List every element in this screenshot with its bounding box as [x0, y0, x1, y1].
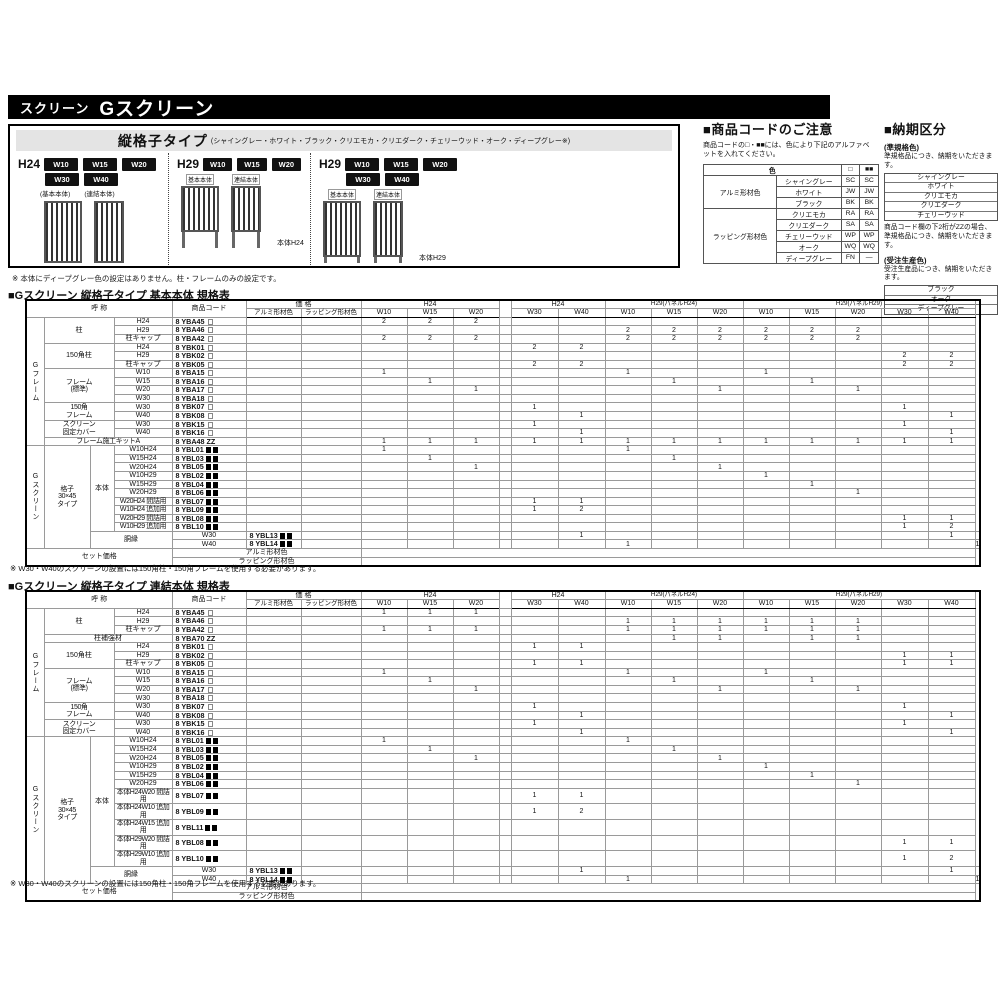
- qty-cell: 1: [835, 617, 881, 626]
- qty-cell: [743, 820, 789, 836]
- spacer-column-header: [499, 591, 511, 608]
- qty-cell: [881, 694, 928, 703]
- spacer-cell: [499, 454, 511, 463]
- size-chip: W40: [84, 173, 118, 186]
- price-cell-alumi: [246, 463, 301, 472]
- spec-row: W20H248 YBL0511: [26, 463, 980, 472]
- qty-cell: [361, 643, 407, 652]
- qty-cell: 1: [928, 412, 975, 421]
- item-size-label: W30: [172, 867, 246, 876]
- qty-cell: [789, 703, 835, 712]
- qty-cell: [407, 851, 453, 867]
- qty-cell: [835, 352, 881, 361]
- qty-cell: [605, 780, 651, 789]
- qty-cell: [361, 497, 407, 506]
- qty-cell: [558, 745, 605, 754]
- code-suffix-box: [206, 840, 211, 846]
- qty-cell: [928, 377, 975, 386]
- spacer-cell: [499, 720, 511, 729]
- size-chip: W40: [385, 173, 419, 186]
- code-suffix-box: [213, 447, 218, 453]
- qty-cell: 1: [928, 531, 975, 540]
- qty-cell: [453, 506, 499, 515]
- qty-cell: 1: [605, 625, 651, 634]
- code-suffix-box: [208, 610, 213, 616]
- price-cell-wrap: [301, 728, 361, 737]
- item-size-label: 本体H29W10 追加用: [114, 851, 172, 867]
- item-size-label: H24: [114, 608, 172, 617]
- joint-screen-drawing: [94, 201, 124, 263]
- code-suffix-box: [213, 482, 218, 488]
- qty-cell: [453, 412, 499, 421]
- qty-cell: [453, 703, 499, 712]
- item-size-label: W40: [114, 429, 172, 438]
- qty-cell: 2: [789, 334, 835, 343]
- price-cell-alumi: [246, 804, 301, 820]
- qty-cell: 2: [511, 343, 558, 352]
- qty-cell: [361, 804, 407, 820]
- qty-cell: [453, 617, 499, 626]
- qty-cell: [789, 651, 835, 660]
- qty-cell: [789, 386, 835, 395]
- qty-cell: [835, 788, 881, 804]
- item-subgroup-label: 150角柱: [44, 343, 114, 369]
- item-size-label: W40: [114, 728, 172, 737]
- qty-cell: [453, 446, 499, 455]
- item-size-label: W10H24: [114, 446, 172, 455]
- spec-row: 胴縁W308 YBL1311: [26, 867, 980, 876]
- qty-cell: [928, 677, 975, 686]
- qty-cell: [835, 835, 881, 851]
- qty-cell: [453, 471, 499, 480]
- spec-row: W208 YBA17111: [26, 386, 980, 395]
- color-code: ―: [860, 252, 879, 263]
- qty-cell: [697, 454, 743, 463]
- qty-cell: [928, 480, 975, 489]
- qty-cell: [407, 771, 453, 780]
- qty-cell: [743, 497, 789, 506]
- price-cell-wrap: [301, 677, 361, 686]
- qty-cell: [453, 420, 499, 429]
- code-suffix-box: [213, 755, 218, 761]
- qty-cell: [881, 711, 928, 720]
- item-size-label: W30: [114, 720, 172, 729]
- qty-cell: [651, 386, 697, 395]
- qty-cell: [881, 454, 928, 463]
- spacer-cell: [499, 634, 511, 643]
- size-panel: H29W10W15W20基本本体連結本体本体H24: [168, 153, 310, 265]
- code-notice-body: 商品コードの□・■■には、色により下記のアルファベットを入れてください。: [703, 141, 875, 160]
- set-price-value-area: [361, 892, 975, 901]
- post-legs: [373, 257, 403, 263]
- spec-row: フレーム施工キットA8 YBA48 ZZ1111111111111: [26, 437, 980, 446]
- qty-cell: 2: [511, 360, 558, 369]
- delivery-color-item: チェリーウッド: [885, 211, 997, 221]
- item-size-label: W10H24: [114, 737, 172, 746]
- material-group-label: ラッピング形材色: [704, 208, 777, 263]
- qty-cell: [361, 412, 407, 421]
- qty-cell: [407, 634, 453, 643]
- qty-cell: [651, 703, 697, 712]
- price-cell-alumi: [246, 677, 301, 686]
- item-size-label: W15: [114, 377, 172, 386]
- product-code: 8 YBA15: [172, 369, 246, 378]
- qty-cell: [453, 762, 499, 771]
- qty-cell: [743, 643, 789, 652]
- height-group-header: H24: [361, 591, 499, 600]
- qty-cell: [361, 394, 407, 403]
- item-size-label: 本体H29W20 間詰用: [114, 835, 172, 851]
- price-cell-alumi: [301, 867, 361, 876]
- qty-cell: 1: [881, 660, 928, 669]
- drawing-caption: 連結本体: [232, 174, 260, 185]
- basic-screen-drawing: [44, 201, 82, 263]
- qty-cell: 1: [511, 720, 558, 729]
- qty-cell: [651, 403, 697, 412]
- qty-cell: [651, 412, 697, 421]
- set-price-value-area: [361, 884, 975, 893]
- spacer-cell: [499, 608, 511, 617]
- qty-cell: [743, 403, 789, 412]
- item-size-label: 本体H24W20 間詰用: [114, 788, 172, 804]
- code-suffix-box: [206, 809, 211, 815]
- qty-cell: [881, 867, 928, 876]
- qty-cell: 1: [743, 617, 789, 626]
- screen-illustration: [94, 201, 124, 263]
- width-column-header: W20: [697, 309, 743, 318]
- color-code: SA: [860, 219, 879, 230]
- qty-cell: [407, 875, 453, 884]
- qty-cell: [511, 617, 558, 626]
- qty-cell: 1: [605, 875, 651, 884]
- qty-cell: [651, 835, 697, 851]
- qty-cell: [407, 668, 453, 677]
- qty-cell: [789, 867, 835, 876]
- qty-cell: [928, 454, 975, 463]
- qty-cell: [407, 780, 453, 789]
- code-suffix-box: [206, 793, 211, 799]
- spacer-cell: [499, 369, 511, 378]
- qty-cell: [511, 369, 558, 378]
- qty-cell: [558, 326, 605, 335]
- code-suffix-box: [213, 840, 218, 846]
- qty-cell: [361, 780, 407, 789]
- qty-cell: 2: [558, 360, 605, 369]
- qty-cell: [511, 711, 558, 720]
- qty-cell: [835, 420, 881, 429]
- qty-cell: 1: [511, 437, 558, 446]
- qty-cell: [789, 343, 835, 352]
- qty-cell: [361, 835, 407, 851]
- spec-header-row-1: 呼 称商品コード価 格H24H24H29(パネルH24)H29(パネルH29): [26, 591, 980, 600]
- code-suffix-box: [213, 793, 218, 799]
- spec-row: W20H248 YBL0511: [26, 754, 980, 763]
- qty-cell: [407, 617, 453, 626]
- qty-cell: [789, 875, 835, 884]
- price-cell-wrap: [301, 685, 361, 694]
- delivery-color-item: クリエモカ: [885, 192, 997, 202]
- qty-cell: [511, 634, 558, 643]
- qty-cell: [881, 540, 928, 549]
- spacer-cell: [499, 668, 511, 677]
- price-cell-alumi: [246, 608, 301, 617]
- qty-cell: [835, 820, 881, 836]
- section-group-label: Gスクリーン: [26, 737, 44, 884]
- qty-cell: 1: [789, 377, 835, 386]
- qty-cell: 1: [881, 420, 928, 429]
- qty-cell: [558, 334, 605, 343]
- qty-cell: [605, 720, 651, 729]
- qty-cell: [511, 523, 558, 532]
- qty-cell: [881, 608, 928, 617]
- price-cell-alumi: [246, 369, 301, 378]
- qty-cell: 1: [407, 677, 453, 686]
- qty-cell: [453, 875, 499, 884]
- qty-cell: [928, 386, 975, 395]
- qty-cell: 1: [881, 851, 928, 867]
- qty-cell: [511, 762, 558, 771]
- qty-cell: [835, 403, 881, 412]
- qty-cell: [928, 762, 975, 771]
- qty-cell: [605, 454, 651, 463]
- qty-cell: [651, 820, 697, 836]
- qty-cell: [558, 780, 605, 789]
- qty-cell: [881, 334, 928, 343]
- spec-row: 150角 フレームW308 YBK0711: [26, 403, 980, 412]
- code-column-header: 商品コード: [172, 300, 246, 317]
- price-group-header: 価 格: [246, 591, 361, 600]
- qty-cell: 2: [881, 360, 928, 369]
- qty-cell: 1: [697, 437, 743, 446]
- item-size-label: W15H24: [114, 745, 172, 754]
- price-cell-wrap: [301, 754, 361, 763]
- spec-row: W15H248 YBL0311: [26, 454, 980, 463]
- spacer-cell: [499, 835, 511, 851]
- qty-cell: [361, 762, 407, 771]
- price-cell-alumi: [246, 352, 301, 361]
- qty-cell: [511, 514, 558, 523]
- qty-cell: [605, 685, 651, 694]
- price-cell-alumi: [246, 317, 301, 326]
- item-size-label: H24: [114, 317, 172, 326]
- spacer-cell: [499, 403, 511, 412]
- screen-drawings: 基本本体連結本体本体H29: [323, 189, 674, 263]
- drawing-caption: 連結本体: [374, 189, 402, 200]
- qty-cell: [453, 780, 499, 789]
- color-code: SA: [841, 219, 860, 230]
- qty-cell: [928, 326, 975, 335]
- spacer-cell: [499, 317, 511, 326]
- code-suffix-box: [213, 473, 218, 479]
- item-subgroup-label: スクリーン 固定カバー: [44, 420, 114, 437]
- qty-cell: [928, 506, 975, 515]
- qty-cell: 1: [605, 437, 651, 446]
- item-subgroup-label: 胴縁: [90, 531, 172, 548]
- product-code-notice: ■商品コードのご注意 商品コードの□・■■には、色により下記のアルファベットを入…: [703, 119, 883, 264]
- qty-cell: [407, 788, 453, 804]
- qty-cell: 1: [361, 625, 407, 634]
- qty-cell: [789, 737, 835, 746]
- qty-cell: [453, 835, 499, 851]
- price-cell-wrap: [301, 352, 361, 361]
- qty-cell: [651, 497, 697, 506]
- code-suffix-box: [208, 730, 213, 736]
- qty-cell: 1: [407, 625, 453, 634]
- code-suffix-box: [287, 541, 292, 547]
- delivery-title: ■納期区分: [884, 119, 998, 138]
- qty-cell: [697, 737, 743, 746]
- qty-cell: 1: [789, 677, 835, 686]
- qty-cell: [928, 745, 975, 754]
- code-suffix-box: [206, 456, 211, 462]
- post-legs: [323, 257, 361, 263]
- spec-table-1-note: ※ W30・W40のスクリーンの設置には150角柱・150角フレームを使用する必…: [10, 563, 320, 574]
- width-column-header: W10: [743, 600, 789, 609]
- qty-cell: [697, 403, 743, 412]
- qty-cell: 1: [605, 446, 651, 455]
- price-cell-alumi: [246, 668, 301, 677]
- code-suffix-box: [208, 661, 213, 667]
- height-label: H24: [18, 157, 40, 171]
- product-code: 8 YBA42: [172, 625, 246, 634]
- qty-cell: [407, 820, 453, 836]
- item-size-label: H29: [114, 651, 172, 660]
- spec-row: スクリーン 固定カバーW308 YBK1511: [26, 420, 980, 429]
- code-suffix-box: [206, 764, 211, 770]
- item-size-label: W10H24 追加用: [114, 506, 172, 515]
- spacer-cell: [499, 463, 511, 472]
- code-suffix-box: [208, 396, 213, 402]
- qty-cell: [881, 463, 928, 472]
- spacer-cell: [499, 412, 511, 421]
- qty-cell: 1: [558, 412, 605, 421]
- qty-cell: 1: [361, 437, 407, 446]
- qty-cell: [407, 531, 453, 540]
- qty-cell: [499, 531, 511, 540]
- item-size-label: W30: [114, 394, 172, 403]
- page-header-bar: スクリーン Gスクリーン: [8, 95, 830, 119]
- qty-cell: [407, 429, 453, 438]
- price-cell-alumi: [246, 651, 301, 660]
- qty-cell: [558, 403, 605, 412]
- qty-cell: [605, 788, 651, 804]
- qty-cell: [605, 651, 651, 660]
- qty-cell: 1: [928, 429, 975, 438]
- qty-cell: [558, 386, 605, 395]
- qty-cell: 1: [835, 437, 881, 446]
- qty-cell: [605, 412, 651, 421]
- price-cell-wrap: [361, 540, 407, 549]
- qty-cell: [605, 745, 651, 754]
- color-code: RA: [860, 208, 879, 219]
- qty-cell: [743, 377, 789, 386]
- width-column-header: W20: [453, 309, 499, 318]
- qty-cell: [697, 728, 743, 737]
- qty-cell: [558, 489, 605, 498]
- qty-cell: [361, 677, 407, 686]
- qty-cell: [743, 780, 789, 789]
- qty-cell: [881, 788, 928, 804]
- width-column-header: W15: [789, 309, 835, 318]
- qty-cell: [511, 429, 558, 438]
- qty-cell: [881, 780, 928, 789]
- spacer-cell: [511, 540, 558, 549]
- qty-cell: [558, 617, 605, 626]
- spec-header-row-1: 呼 称商品コード価 格H24H24H29(パネルH24)H29(パネルH29): [26, 300, 980, 309]
- item-subgroup-label: 格子 30×45 タイプ: [44, 737, 90, 884]
- code-suffix-box: [206, 482, 211, 488]
- code-suffix-box: [208, 670, 213, 676]
- qty-cell: [558, 737, 605, 746]
- qty-cell: [743, 343, 789, 352]
- qty-cell: [407, 720, 453, 729]
- delivery-color-item: ブラック: [885, 286, 997, 295]
- qty-cell: [928, 804, 975, 820]
- height-label: H29: [319, 157, 341, 171]
- qty-cell: 1: [975, 540, 980, 549]
- qty-cell: [928, 489, 975, 498]
- qty-cell: [697, 608, 743, 617]
- qty-cell: [605, 343, 651, 352]
- order-color-text: 受注生産品につき、納期をいただきます。: [884, 266, 998, 284]
- qty-cell: [453, 454, 499, 463]
- qty-cell: [881, 762, 928, 771]
- qty-cell: 1: [743, 668, 789, 677]
- qty-cell: [743, 720, 789, 729]
- qty-cell: [361, 506, 407, 515]
- qty-cell: [743, 851, 789, 867]
- code-suffix-box: [213, 781, 218, 787]
- qty-cell: 2: [835, 326, 881, 335]
- color-column-header: 色: [704, 164, 842, 175]
- qty-cell: [835, 677, 881, 686]
- price-cell-wrap: [301, 343, 361, 352]
- qty-cell: 1: [789, 634, 835, 643]
- single-box-header: □: [841, 164, 860, 175]
- price-cell-alumi: [246, 429, 301, 438]
- qty-cell: 1: [697, 463, 743, 472]
- product-code: 8 YBL06: [172, 489, 246, 498]
- item-size-label: W20H29: [114, 489, 172, 498]
- qty-cell: [789, 471, 835, 480]
- qty-cell: [835, 377, 881, 386]
- code-suffix-box: [213, 507, 218, 513]
- qty-cell: [361, 851, 407, 867]
- qty-cell: [453, 651, 499, 660]
- qty-cell: 1: [789, 437, 835, 446]
- qty-cell: [511, 608, 558, 617]
- std-color-label: (準規格色): [884, 142, 998, 153]
- price-cell-wrap: [301, 317, 361, 326]
- qty-cell: [453, 326, 499, 335]
- width-column-header: W10: [743, 309, 789, 318]
- qty-cell: [881, 668, 928, 677]
- qty-cell: [651, 875, 697, 884]
- qty-cell: [697, 514, 743, 523]
- qty-cell: [928, 471, 975, 480]
- qty-cell: [361, 745, 407, 754]
- code-suffix-box: [213, 499, 218, 505]
- qty-cell: [407, 867, 453, 876]
- qty-cell: [928, 463, 975, 472]
- price-cell-wrap: [301, 668, 361, 677]
- qty-cell: [697, 471, 743, 480]
- qty-cell: [558, 762, 605, 771]
- code-suffix-box: [208, 319, 213, 325]
- price-cell-alumi: [246, 737, 301, 746]
- qty-cell: [835, 360, 881, 369]
- qty-cell: [881, 771, 928, 780]
